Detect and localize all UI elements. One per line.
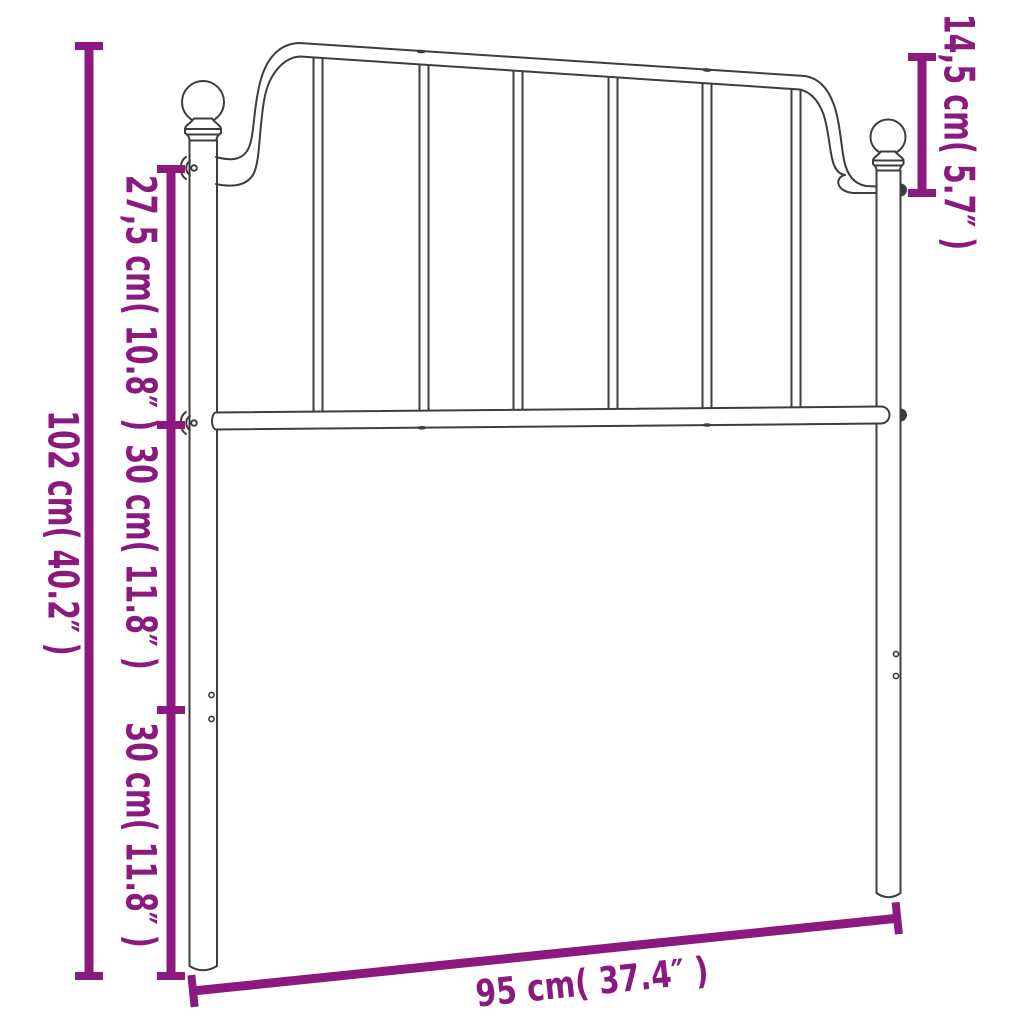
headboard-dimension-drawing: 102 cm( 40.2″ ) 27,5 cm( 10.8″ ) 30 cm( … xyxy=(0,0,1024,1024)
right-post xyxy=(877,171,901,898)
bar xyxy=(792,84,801,418)
dimension-diagram: 102 cm( 40.2″ ) 27,5 cm( 10.8″ ) 30 cm( … xyxy=(0,0,1024,1024)
screw-hole-icon xyxy=(893,673,898,678)
bar xyxy=(314,52,323,418)
ball-icon xyxy=(871,120,906,155)
right-ball-finial xyxy=(871,120,906,171)
left-ball-finial xyxy=(182,81,224,141)
label-total-height: 102 cm( 40.2″ ) xyxy=(38,410,86,655)
label-finial-height: 14,5 cm( 5.7″ ) xyxy=(934,14,982,250)
bar xyxy=(609,72,618,418)
bar xyxy=(514,65,523,418)
dimension-lines xyxy=(75,46,936,1007)
screw-icon xyxy=(901,184,908,197)
headboard-bars xyxy=(314,52,801,418)
bar xyxy=(420,59,429,418)
bar xyxy=(703,78,712,418)
weld-dots xyxy=(416,49,711,429)
screw-holes xyxy=(209,651,899,721)
screw-hole-icon xyxy=(209,716,214,721)
label-upper-section: 27,5 cm( 10.8″ ) xyxy=(116,175,164,431)
label-middle-section: 30 cm( 11.8″ ) xyxy=(116,444,164,670)
screw-hole-icon xyxy=(893,651,898,656)
left-post xyxy=(190,140,218,970)
label-lower-section: 30 cm( 11.8″ ) xyxy=(116,722,164,948)
screw-hole-icon xyxy=(209,692,214,697)
dimension-finial-line xyxy=(908,57,936,193)
ball-icon xyxy=(182,81,224,123)
headboard-outline xyxy=(181,43,907,970)
screw-icon xyxy=(901,409,907,422)
